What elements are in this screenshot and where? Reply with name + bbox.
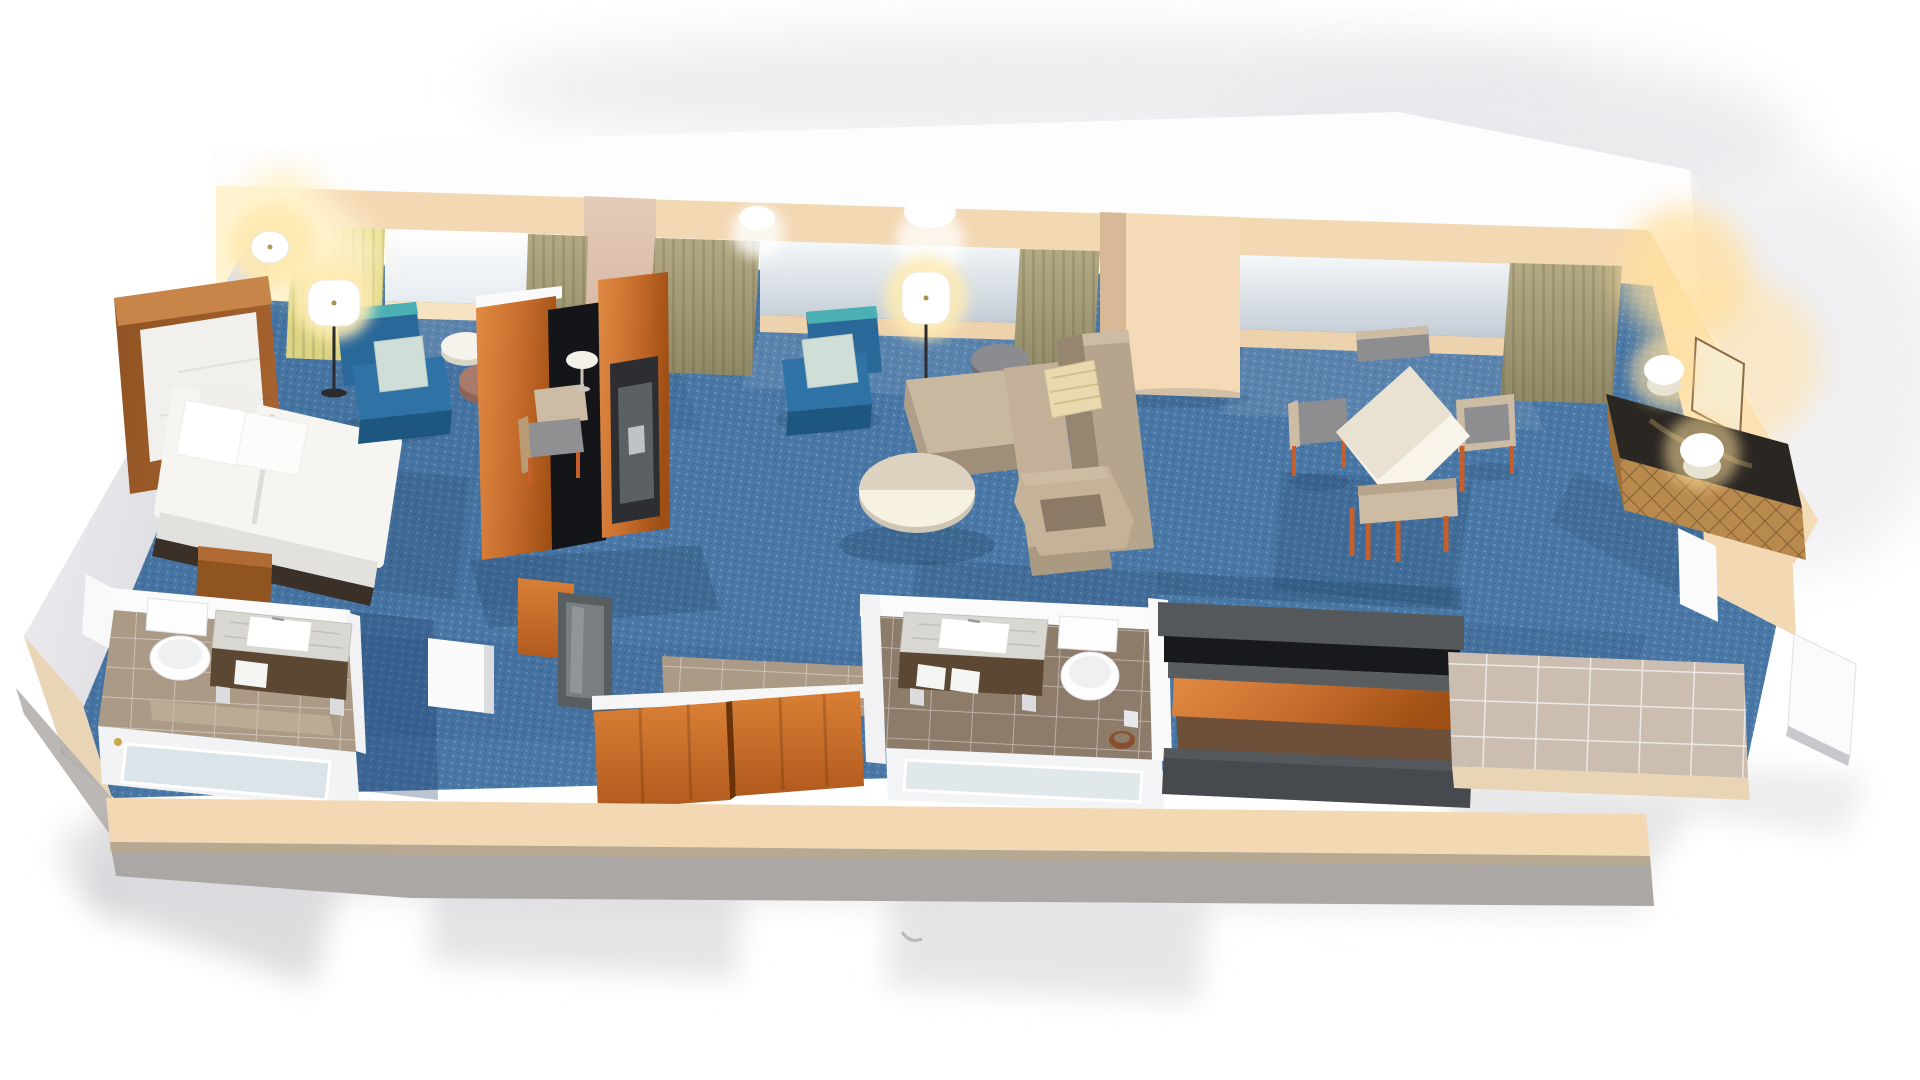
entry bbox=[1448, 652, 1750, 800]
entry-tile-grout bbox=[1448, 652, 1748, 778]
towel bbox=[950, 668, 980, 694]
tv-reflection bbox=[628, 425, 645, 455]
vanity-leg bbox=[216, 686, 230, 704]
flush-plate bbox=[1124, 710, 1138, 728]
console-lamp-rear bbox=[1630, 338, 1698, 406]
living-divider-front bbox=[1126, 213, 1240, 398]
console-lamp-front bbox=[1664, 414, 1740, 490]
vessel-sink bbox=[246, 616, 312, 652]
ceiling-light-glow bbox=[739, 206, 775, 230]
armchair-seat bbox=[1040, 494, 1106, 532]
towel bbox=[234, 660, 268, 688]
dining-chair-top bbox=[1356, 326, 1430, 362]
vanity-leg bbox=[330, 698, 344, 716]
wall-pillar-side bbox=[484, 645, 494, 714]
front-wall bbox=[106, 798, 1654, 906]
suite-illustration bbox=[0, 0, 1920, 1080]
ceiling-light-glow bbox=[904, 196, 956, 228]
curtain-dining bbox=[1500, 263, 1622, 404]
closet-door-right bbox=[732, 691, 864, 796]
closet-door-left bbox=[594, 702, 730, 810]
toilet-tank bbox=[1058, 616, 1118, 652]
vessel-sink bbox=[938, 618, 1010, 654]
towel bbox=[916, 664, 946, 690]
floorplan-render bbox=[0, 0, 1920, 1080]
vanity-leg bbox=[910, 688, 924, 706]
kitchenette-bar bbox=[1148, 598, 1472, 808]
coffee-table bbox=[859, 453, 975, 533]
throw-pillow bbox=[374, 336, 428, 392]
vanity-leg bbox=[1022, 694, 1036, 712]
pillow bbox=[236, 412, 308, 476]
second-bathroom bbox=[860, 594, 1164, 812]
throw-pillow bbox=[802, 334, 858, 388]
waste-basket bbox=[1109, 731, 1135, 749]
full-length-mirror bbox=[558, 592, 612, 712]
dining-window bbox=[1240, 255, 1510, 338]
shower-fixture bbox=[114, 738, 122, 746]
corner-table-lamp bbox=[230, 204, 314, 288]
master-bathroom bbox=[98, 588, 366, 810]
toilet-tank bbox=[146, 598, 208, 636]
